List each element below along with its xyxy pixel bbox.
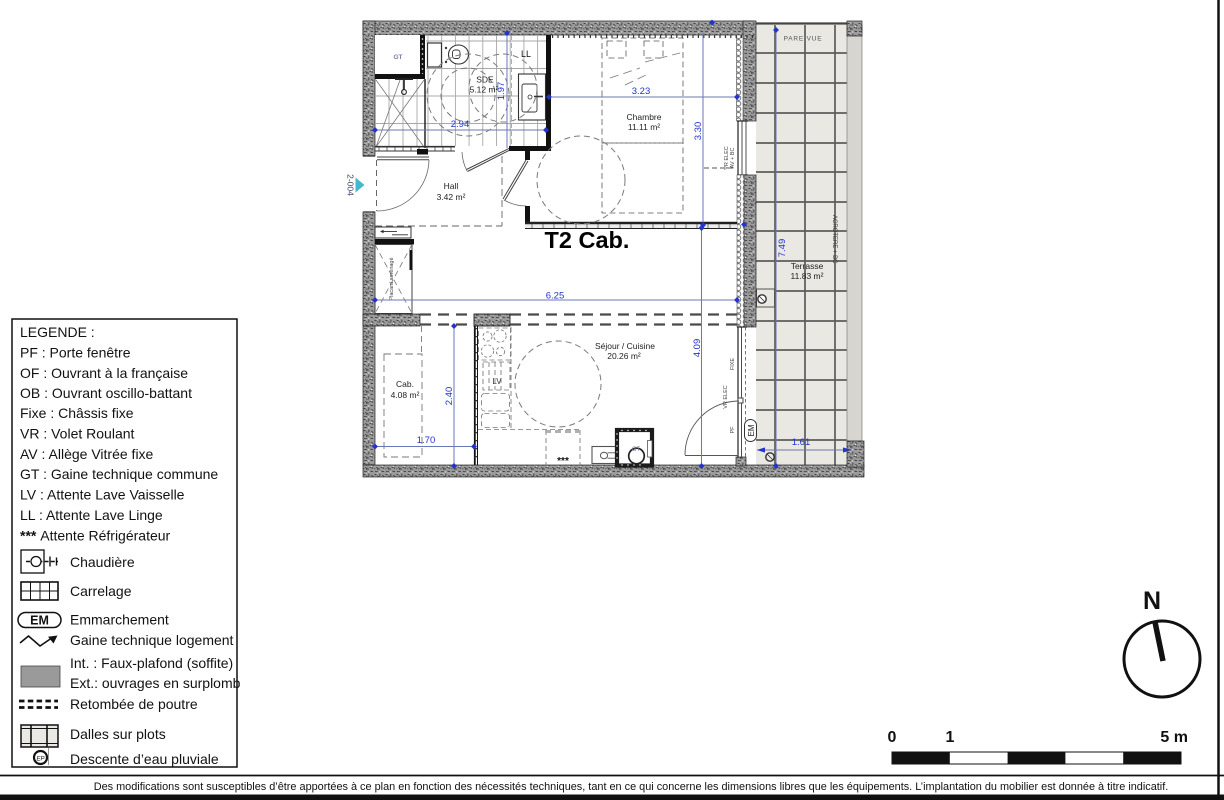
svg-text:3.23: 3.23 — [632, 86, 651, 97]
svg-text:5.12 m²: 5.12 m² — [470, 85, 499, 95]
svg-text:Placard aménagé: Placard aménagé — [389, 257, 395, 300]
svg-text:Descente d’eau pluviale: Descente d’eau pluviale — [70, 751, 219, 767]
svg-text:1.61: 1.61 — [792, 437, 811, 448]
svg-text:Retombée de poutre: Retombée de poutre — [70, 696, 198, 712]
svg-text:AV + BC: AV + BC — [730, 148, 736, 169]
svg-text:4.08 m²: 4.08 m² — [391, 390, 420, 400]
svg-text:LL : Attente Lave Linge: LL : Attente Lave Linge — [20, 507, 163, 523]
svg-text:3.30: 3.30 — [693, 122, 704, 141]
svg-text:Dalles sur plots: Dalles sur plots — [70, 726, 166, 742]
svg-text:PF: PF — [730, 426, 736, 434]
svg-text:Terrasse: Terrasse — [791, 261, 824, 271]
svg-text:11.83 m²: 11.83 m² — [791, 271, 824, 281]
svg-text:2.94: 2.94 — [451, 119, 470, 130]
svg-text:LV : Attente Lave Vaisselle: LV : Attente Lave Vaisselle — [20, 487, 185, 503]
svg-text:20.26 m²: 20.26 m² — [607, 351, 641, 361]
svg-text:3.42 m²: 3.42 m² — [437, 192, 466, 202]
svg-text:1.97: 1.97 — [496, 82, 507, 101]
svg-text:LV: LV — [492, 377, 502, 386]
svg-text:OB : Ouvrant oscillo-battant: OB : Ouvrant oscillo-battant — [20, 385, 192, 401]
svg-text:Carrelage: Carrelage — [70, 583, 132, 599]
svg-text:EM: EM — [747, 424, 756, 436]
svg-text:GT : Gaine technique commune: GT : Gaine technique commune — [20, 466, 218, 482]
svg-text:T2 Cab.: T2 Cab. — [545, 227, 630, 253]
svg-text:1: 1 — [946, 729, 955, 746]
svg-text:11.11 m²: 11.11 m² — [628, 122, 660, 132]
svg-text:OF : Ouvrant à la française: OF : Ouvrant à la française — [20, 365, 188, 381]
svg-text:Séjour / Cuisine: Séjour / Cuisine — [595, 341, 655, 351]
svg-text:4.09: 4.09 — [692, 339, 703, 358]
svg-text:AV : Allège Vitrée fixe: AV : Allège Vitrée fixe — [20, 446, 154, 462]
svg-text:Chaudière: Chaudière — [70, 554, 135, 570]
svg-text:Chambre: Chambre — [627, 112, 662, 122]
svg-text:LEGENDE :: LEGENDE : — [20, 324, 95, 340]
svg-text:SDE: SDE — [476, 75, 494, 85]
svg-text:VR : Volet Roulant: VR : Volet Roulant — [20, 426, 135, 442]
svg-text:N: N — [1143, 587, 1161, 615]
svg-text:*** Attente Réfrigérateur: *** Attente Réfrigérateur — [20, 528, 171, 544]
svg-text:PARE VUE: PARE VUE — [784, 36, 823, 43]
svg-text:Hall: Hall — [444, 181, 459, 191]
svg-text:Emmarchement: Emmarchement — [70, 612, 169, 628]
svg-text:1.70: 1.70 — [417, 435, 436, 446]
svg-text:2-004: 2-004 — [346, 174, 356, 196]
svg-text:EP: EP — [36, 757, 44, 763]
svg-text:PF : Porte fenêtre: PF : Porte fenêtre — [20, 345, 131, 361]
svg-text:Cab.: Cab. — [396, 379, 414, 389]
svg-text:VR ELEC: VR ELEC — [723, 385, 729, 409]
svg-text:5 m: 5 m — [1160, 729, 1188, 746]
svg-text:Int. : Faux-plafond (soffite): Int. : Faux-plafond (soffite) — [70, 655, 233, 671]
svg-text:Ext.: ouvrages en surplomb: Ext.: ouvrages en surplomb — [70, 675, 241, 691]
svg-text:GT: GT — [393, 54, 402, 61]
svg-text:Gaine technique logement: Gaine technique logement — [70, 632, 234, 648]
svg-text:***: *** — [557, 456, 569, 467]
svg-text:FIXE: FIXE — [730, 358, 736, 371]
svg-text:ACROTERE + BC: ACROTERE + BC — [831, 215, 837, 264]
svg-text:2.40: 2.40 — [444, 387, 455, 406]
svg-text:7.49: 7.49 — [777, 239, 788, 258]
svg-text:EM: EM — [30, 614, 49, 628]
svg-text:0: 0 — [888, 729, 897, 746]
svg-text:Des modifications sont suscept: Des modifications sont susceptibles d’êt… — [94, 781, 1169, 793]
svg-text:GT: GT — [632, 447, 641, 453]
svg-text:LL: LL — [521, 49, 531, 59]
svg-text:Fixe : Châssis fixe: Fixe : Châssis fixe — [20, 405, 134, 421]
svg-text:6.25: 6.25 — [546, 291, 565, 302]
